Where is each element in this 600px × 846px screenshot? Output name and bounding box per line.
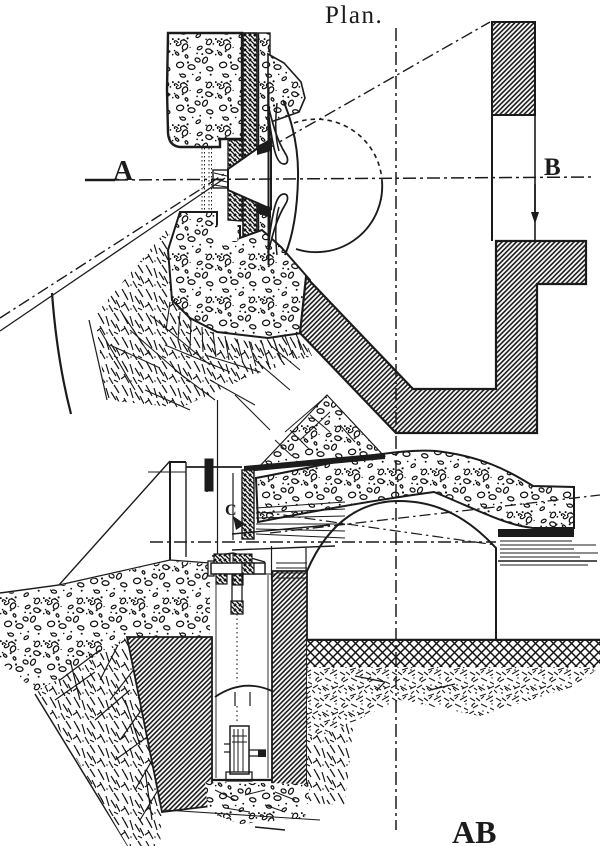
svg-text:Plan.: Plan.: [325, 2, 383, 29]
svg-text:C: C: [225, 502, 237, 519]
svg-text:B: B: [544, 154, 561, 181]
svg-text:A: A: [113, 156, 134, 187]
svg-text:AB: AB: [452, 814, 496, 846]
